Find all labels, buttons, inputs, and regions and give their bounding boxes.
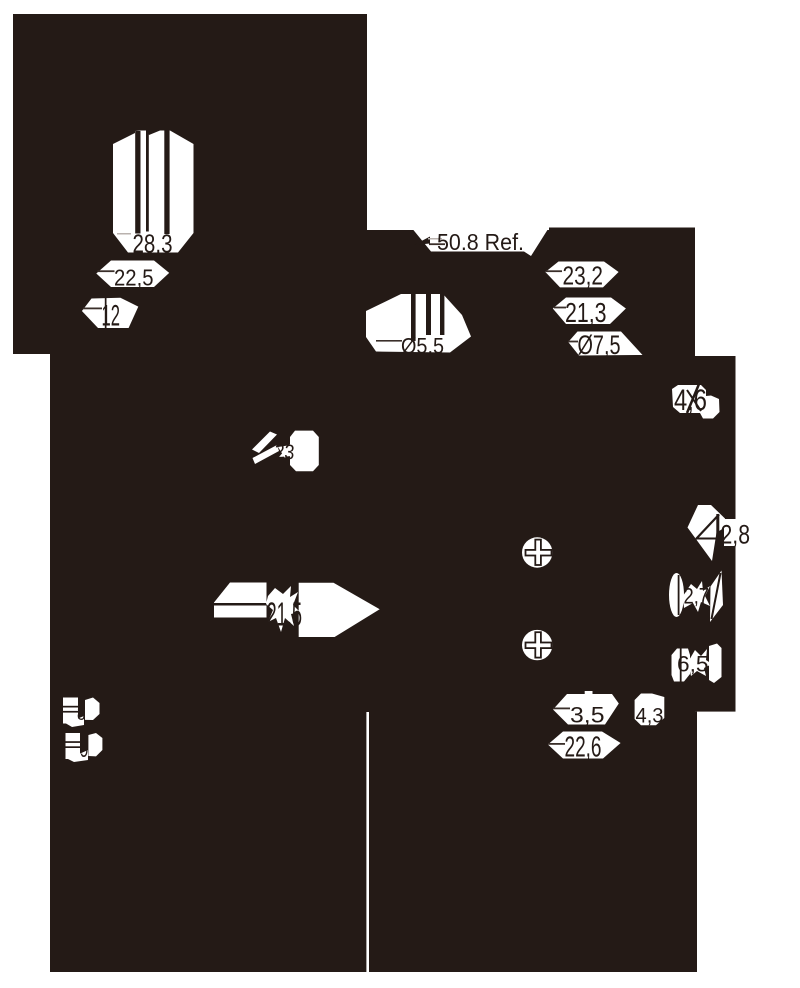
svg-text:4,3: 4,3: [636, 705, 664, 728]
svg-text:3,5: 3,5: [570, 703, 605, 728]
svg-text:12: 12: [102, 300, 121, 333]
svg-text:9: 9: [80, 737, 89, 762]
svg-text:8: 8: [77, 702, 86, 725]
svg-text:50.8 Ref.: 50.8 Ref.: [437, 229, 524, 255]
svg-text:23: 23: [274, 440, 296, 464]
svg-text:28,3: 28,3: [133, 229, 173, 259]
svg-text:23,2: 23,2: [563, 261, 604, 291]
svg-text:21,5: 21,5: [267, 596, 303, 633]
svg-text:22,6: 22,6: [565, 732, 602, 764]
svg-text:2,8: 2,8: [721, 519, 751, 549]
svg-text:Ø7,5: Ø7,5: [578, 330, 621, 360]
svg-text:21,3: 21,3: [565, 297, 607, 328]
svg-text:4,6: 4,6: [674, 384, 707, 417]
svg-text:6,5: 6,5: [677, 652, 709, 677]
svg-text:2,7: 2,7: [684, 584, 710, 609]
svg-text:22,5: 22,5: [114, 264, 154, 290]
svg-text:Ø5,5: Ø5,5: [401, 334, 444, 359]
